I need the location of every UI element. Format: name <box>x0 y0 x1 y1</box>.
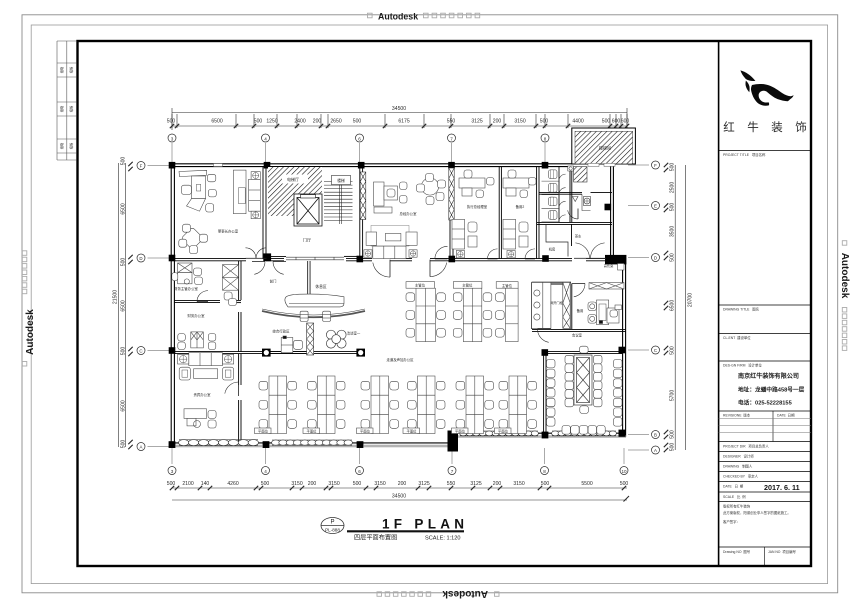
svg-text:电话：025-52228155: 电话：025-52228155 <box>738 399 792 407</box>
svg-text:1F PLAN: 1F PLAN <box>382 517 468 532</box>
svg-text:6500: 6500 <box>120 203 126 214</box>
svg-text:500: 500 <box>353 119 362 125</box>
svg-text:主管位: 主管位 <box>502 283 513 288</box>
svg-text:主管位: 主管位 <box>415 283 426 288</box>
svg-text:Autodesk: Autodesk <box>25 309 36 355</box>
svg-text:3125: 3125 <box>470 481 481 487</box>
svg-text:DES-GN F/RM 设计单位: DES-GN F/RM 设计单位 <box>723 363 762 368</box>
svg-text:200: 200 <box>313 119 322 125</box>
svg-text:10: 10 <box>621 469 627 474</box>
svg-text:20700: 20700 <box>688 293 694 307</box>
svg-text:3150: 3150 <box>513 481 524 487</box>
svg-text:PROJECT T/TLE 项目名称: PROJECT T/TLE 项目名称 <box>723 152 766 157</box>
svg-text:电梯厅: 电梯厅 <box>287 176 299 182</box>
svg-text:6500: 6500 <box>120 400 126 411</box>
svg-text:500: 500 <box>540 119 549 125</box>
svg-text:茶水: 茶水 <box>575 234 582 239</box>
svg-text:董事长办公室: 董事长办公室 <box>218 229 239 234</box>
svg-text:4: 4 <box>264 137 267 142</box>
svg-text:500: 500 <box>670 163 676 172</box>
svg-text:洽谈室一: 洽谈室一 <box>347 331 361 336</box>
svg-text:缩略: 缩略 <box>69 66 74 73</box>
svg-text:500: 500 <box>670 430 676 439</box>
svg-text:DATE 日 期: DATE 日 期 <box>723 484 744 489</box>
svg-text:平面位: 平面位 <box>360 428 371 433</box>
svg-text:5700: 5700 <box>670 390 676 401</box>
svg-text:7: 7 <box>450 137 453 142</box>
svg-text:南京红牛装饰有限公司: 南京红牛装饰有限公司 <box>738 372 799 380</box>
svg-text:平面位: 平面位 <box>307 428 318 433</box>
svg-text:装: 装 <box>771 121 783 134</box>
svg-text:E: E <box>654 204 657 209</box>
svg-text:平面位: 平面位 <box>498 428 509 433</box>
svg-text:DATE 日期: DATE 日期 <box>777 413 795 418</box>
svg-text:门厅: 门厅 <box>303 237 311 244</box>
svg-text:600: 600 <box>621 119 630 125</box>
svg-text:3150: 3150 <box>328 481 339 487</box>
svg-text:前门: 前门 <box>270 279 277 284</box>
svg-text:DRAWING 制图人: DRAWING 制图人 <box>723 464 753 469</box>
svg-text:缩略: 缩略 <box>69 105 74 112</box>
svg-text:总经办公室: 总经办公室 <box>400 211 418 216</box>
svg-text:备用2: 备用2 <box>516 204 525 209</box>
svg-text:5500: 5500 <box>581 481 592 487</box>
svg-text:DESIGNER 设计师: DESIGNER 设计师 <box>723 454 754 459</box>
svg-text:主管位: 主管位 <box>462 283 473 288</box>
svg-text:500: 500 <box>670 443 676 452</box>
svg-text:3125: 3125 <box>471 119 482 125</box>
svg-text:PL-888: PL-888 <box>325 528 340 533</box>
svg-text:缩略: 缩略 <box>59 105 64 112</box>
svg-text:A: A <box>140 445 143 450</box>
svg-text:6: 6 <box>358 137 361 142</box>
svg-text:500: 500 <box>261 481 270 487</box>
svg-text:楼梯间: 楼梯间 <box>599 145 611 151</box>
svg-text:2017. 6. 11: 2017. 6. 11 <box>764 483 800 492</box>
svg-text:B: B <box>654 433 657 438</box>
svg-text:Autodesk: Autodesk <box>839 253 850 299</box>
svg-text:8: 8 <box>544 137 547 142</box>
svg-text:2100: 2100 <box>182 481 193 487</box>
svg-text:500: 500 <box>254 119 263 125</box>
svg-text:500: 500 <box>353 481 362 487</box>
svg-text:200: 200 <box>493 119 502 125</box>
svg-text:4400: 4400 <box>572 119 583 125</box>
svg-text:3: 3 <box>171 469 174 474</box>
svg-text:C: C <box>139 349 142 354</box>
svg-text:C: C <box>654 348 657 353</box>
svg-text:3150: 3150 <box>514 119 525 125</box>
svg-text:6500: 6500 <box>120 300 126 311</box>
svg-text:PROJECT DIR 项目总负责人: PROJECT DIR 项目总负责人 <box>723 444 769 449</box>
svg-text:500: 500 <box>167 119 176 125</box>
svg-text:楼梯: 楼梯 <box>337 178 345 183</box>
svg-text:贵宾办公室: 贵宾办公室 <box>194 392 212 397</box>
svg-text:综合行政区: 综合行政区 <box>273 329 291 334</box>
svg-text:500: 500 <box>670 346 676 355</box>
svg-text:6500: 6500 <box>211 119 222 125</box>
svg-text:200: 200 <box>308 481 317 487</box>
svg-text:此方案版权，阳谋创业享人签字的图纸施工。: 此方案版权，阳谋创业享人签字的图纸施工。 <box>723 510 791 515</box>
svg-text:34500: 34500 <box>392 494 406 500</box>
svg-text:7: 7 <box>451 469 454 474</box>
svg-text:机房: 机房 <box>549 247 556 252</box>
svg-text:34500: 34500 <box>392 106 406 112</box>
svg-text:SCALE: 1:120: SCALE: 1:120 <box>425 536 460 542</box>
svg-text:平面位: 平面位 <box>455 428 466 433</box>
svg-text:缩略: 缩略 <box>59 142 64 149</box>
svg-text:缩略: 缩略 <box>59 66 64 73</box>
svg-text:500: 500 <box>602 119 611 125</box>
svg-text:走道及声加办公区: 走道及声加办公区 <box>386 357 414 362</box>
svg-text:3150: 3150 <box>291 481 302 487</box>
svg-text:4: 4 <box>264 469 267 474</box>
svg-text:500: 500 <box>670 203 676 212</box>
svg-text:2500: 2500 <box>670 182 676 193</box>
svg-text:500: 500 <box>670 253 676 262</box>
svg-text:饰: 饰 <box>795 120 807 134</box>
svg-text:3150: 3150 <box>374 481 385 487</box>
svg-text:两开门柜: 两开门柜 <box>550 300 562 305</box>
svg-text:REVISIONE 版本: REVISIONE 版本 <box>723 413 751 418</box>
svg-text:平面位: 平面位 <box>407 428 418 433</box>
svg-text:Autodesk: Autodesk <box>378 11 418 21</box>
svg-text:8: 8 <box>543 469 546 474</box>
svg-text:2650: 2650 <box>330 119 341 125</box>
svg-text:6175: 6175 <box>398 119 409 125</box>
svg-text:JAN NO 项目编号: JAN NO 项目编号 <box>768 549 796 554</box>
svg-text:200: 200 <box>493 481 502 487</box>
svg-text:500: 500 <box>120 258 126 267</box>
svg-text:缩略: 缩略 <box>69 142 74 149</box>
svg-text:CHECKED BY 审定人: CHECKED BY 审定人 <box>723 474 759 479</box>
svg-text:牛: 牛 <box>747 120 759 134</box>
svg-text:P: P <box>330 520 334 526</box>
svg-text:DRAWING T/TLE 图名: DRAWING T/TLE 图名 <box>723 307 759 312</box>
svg-text:3500: 3500 <box>670 226 676 237</box>
svg-text:D: D <box>654 256 657 261</box>
svg-text:D: D <box>139 256 142 261</box>
svg-text:地址：龙蟠中路458号一层: 地址：龙蟠中路458号一层 <box>738 386 805 394</box>
svg-text:财务主管办公室: 财务主管办公室 <box>174 286 198 291</box>
svg-text:500: 500 <box>120 157 126 166</box>
svg-text:SCALE 比 例: SCALE 比 例 <box>723 494 746 499</box>
svg-text:高长桌: 高长桌 <box>604 263 614 268</box>
svg-text:21500: 21500 <box>112 290 118 304</box>
svg-text:休息区: 休息区 <box>315 284 327 289</box>
svg-text:550: 550 <box>447 481 456 487</box>
svg-text:红: 红 <box>723 121 735 134</box>
svg-text:版权所有红牛装饰: 版权所有红牛装饰 <box>723 504 751 509</box>
svg-text:Autodesk: Autodesk <box>442 588 488 599</box>
svg-text:6: 6 <box>358 469 361 474</box>
svg-text:A: A <box>654 448 657 453</box>
svg-text:Drawing NO 图号: Drawing NO 图号 <box>723 549 751 554</box>
svg-text:会议室: 会议室 <box>572 333 583 338</box>
svg-text:备用: 备用 <box>577 308 584 313</box>
svg-text:200: 200 <box>398 481 407 487</box>
svg-text:F: F <box>140 164 143 169</box>
svg-text:四层平面布置图: 四层平面布置图 <box>354 534 397 542</box>
svg-text:2400: 2400 <box>294 119 305 125</box>
svg-text:财务办公室: 财务办公室 <box>188 313 206 318</box>
svg-text:1250: 1250 <box>266 119 277 125</box>
svg-text:500: 500 <box>120 347 126 356</box>
svg-text:3: 3 <box>171 137 174 142</box>
svg-text:CL-ENT 建设单位: CL-ENT 建设单位 <box>723 335 751 340</box>
svg-text:4260: 4260 <box>227 481 238 487</box>
svg-text:客户签字：: 客户签字： <box>723 519 740 524</box>
svg-text:500: 500 <box>120 440 126 449</box>
svg-text:平面位: 平面位 <box>258 428 269 433</box>
svg-text:执行总经理室: 执行总经理室 <box>467 204 488 209</box>
svg-text:6500: 6500 <box>670 300 676 311</box>
svg-text:F: F <box>654 163 657 168</box>
svg-text:500: 500 <box>620 481 629 487</box>
